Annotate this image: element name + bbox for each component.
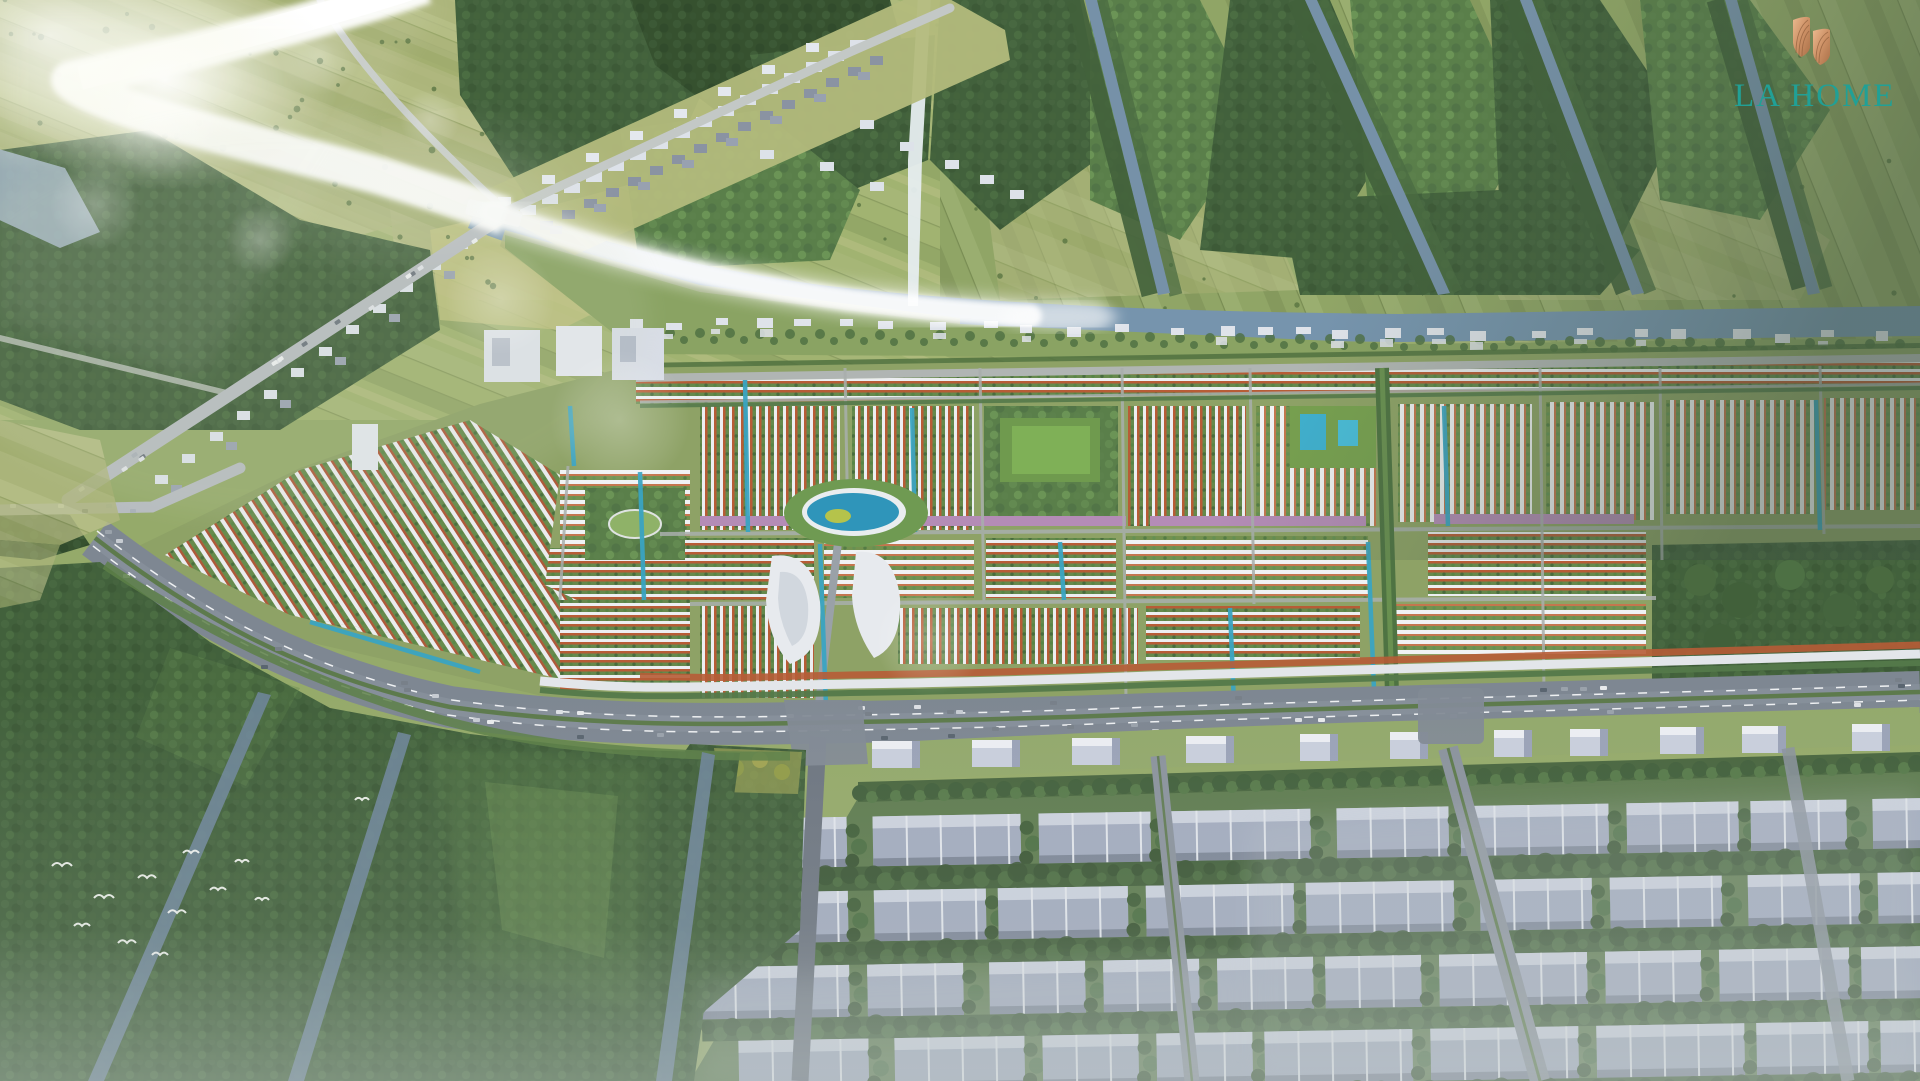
svg-text:LA HOME: LA HOME bbox=[1734, 78, 1896, 114]
